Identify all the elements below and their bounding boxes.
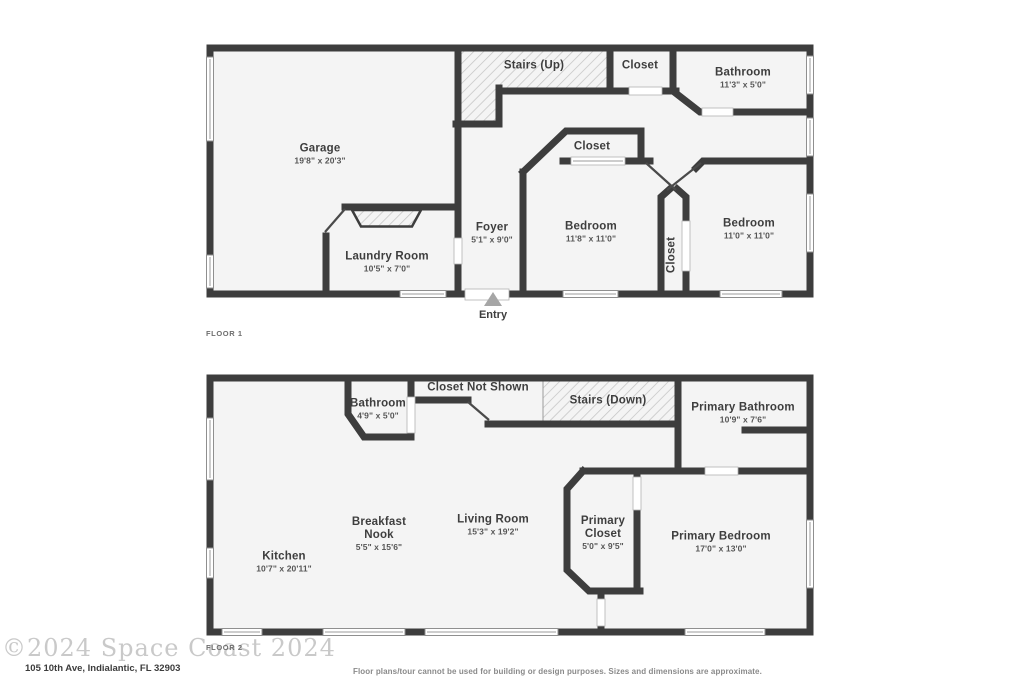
room-label-stairs-down: Stairs (Down) — [570, 395, 647, 408]
room-label-primary-bathroom: Primary Bathroom 10'9" x 7'6" — [691, 401, 795, 425]
room-name: Closet — [666, 237, 679, 273]
room-name: Stairs (Down) — [570, 395, 647, 408]
room-name: Bathroom — [715, 66, 771, 79]
room-label-primary-bedroom: Primary Bedroom 17'0" x 13'0" — [671, 530, 771, 554]
room-dims: 10'9" x 7'6" — [691, 414, 795, 425]
room-dims: 5'0" x 9'5" — [576, 541, 630, 552]
room-name: Breakfast Nook — [347, 516, 411, 542]
watermark-text: ©2024 Space Coast 2024 — [2, 634, 336, 662]
room-name: Foyer — [471, 221, 513, 234]
room-dims: 10'7" x 20'11" — [256, 563, 312, 574]
room-name: Bedroom — [565, 220, 617, 233]
room-label-closet-vert: Closet — [666, 237, 679, 273]
room-label-breakfast-nook: Breakfast Nook 5'5" x 15'6" — [347, 516, 411, 552]
room-label-kitchen: Kitchen 10'7" x 20'11" — [256, 550, 312, 574]
room-name: Stairs (Up) — [504, 60, 564, 73]
room-name: Closet Not Shown — [427, 382, 529, 395]
property-address: 105 10th Ave, Indialantic, FL 32903 — [25, 663, 180, 674]
room-label-bedroom-left: Bedroom 11'8" x 11'0" — [565, 220, 617, 244]
room-dims: 5'1" x 9'0" — [471, 234, 513, 245]
room-name: Closet — [574, 141, 610, 154]
room-label-foyer: Foyer 5'1" x 9'0" — [471, 221, 513, 245]
room-name: Laundry Room — [345, 250, 429, 263]
room-name: Primary Bathroom — [691, 401, 795, 414]
room-name: Closet — [622, 60, 658, 73]
room-dims: 17'0" x 13'0" — [671, 543, 771, 554]
floor1-tag: FLOOR 1 — [206, 329, 243, 338]
room-label-closet-mid: Closet — [574, 141, 610, 154]
room-label-bedroom-right: Bedroom 11'0" x 11'0" — [723, 217, 775, 241]
floorplan-page: Garage 19'8" x 20'3" Stairs (Up) Closet … — [0, 0, 1024, 683]
room-dims: 4'9" x 5'0" — [350, 410, 406, 421]
floor2-tag: FLOOR 2 — [206, 643, 243, 652]
room-label-closet-top: Closet — [622, 60, 658, 73]
room-name: Bedroom — [723, 217, 775, 230]
room-name: Bathroom — [350, 397, 406, 410]
room-dims: 11'3" x 5'0" — [715, 79, 771, 90]
room-name: Garage — [294, 142, 345, 155]
room-name: Living Room — [457, 513, 529, 526]
room-dims: 15'3" x 19'2" — [457, 526, 529, 537]
room-name: Primary Closet — [576, 515, 630, 541]
room-name: Kitchen — [256, 550, 312, 563]
room-label-laundry: Laundry Room 10'5" x 7'0" — [345, 250, 429, 274]
room-dims: 11'0" x 11'0" — [723, 230, 775, 241]
disclaimer-text: Floor plans/tour cannot be used for buil… — [353, 667, 762, 676]
room-label-bathroom-f2: Bathroom 4'9" x 5'0" — [350, 397, 406, 421]
room-label-closet-not-shown: Closet Not Shown — [427, 382, 529, 395]
room-dims: 11'8" x 11'0" — [565, 233, 617, 244]
room-name: Primary Bedroom — [671, 530, 771, 543]
room-label-garage: Garage 19'8" x 20'3" — [294, 142, 345, 166]
room-label-living-room: Living Room 15'3" x 19'2" — [457, 513, 529, 537]
room-label-primary-closet: Primary Closet 5'0" x 9'5" — [576, 515, 630, 551]
room-label-bathroom-f1: Bathroom 11'3" x 5'0" — [715, 66, 771, 90]
floorplan-drawing — [0, 0, 1024, 683]
entry-label: Entry — [479, 309, 507, 321]
entry-opening — [465, 289, 509, 300]
room-label-stairs-up: Stairs (Up) — [504, 60, 564, 73]
room-dims: 5'5" x 15'6" — [347, 542, 411, 553]
room-dims: 10'5" x 7'0" — [345, 263, 429, 274]
room-dims: 19'8" x 20'3" — [294, 155, 345, 166]
